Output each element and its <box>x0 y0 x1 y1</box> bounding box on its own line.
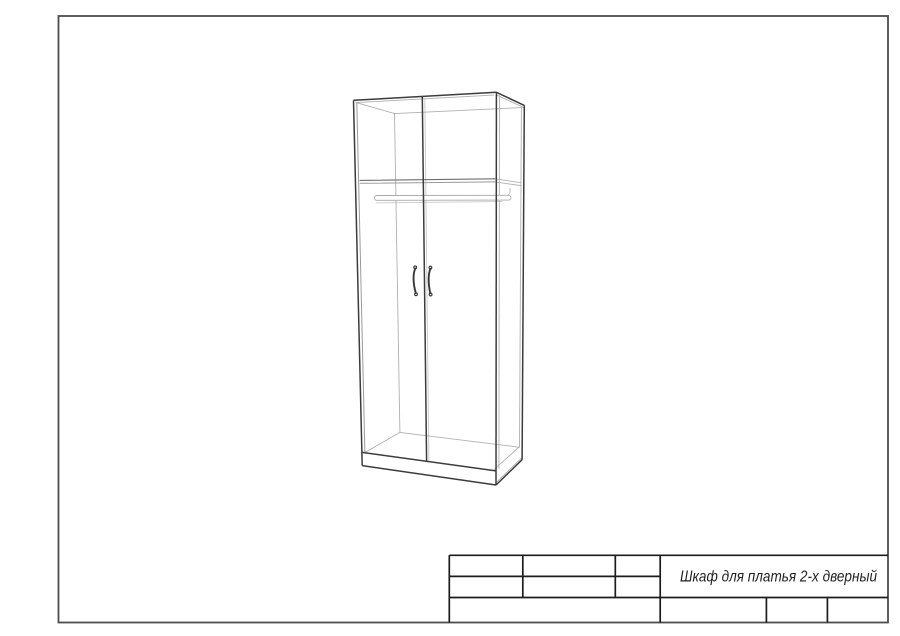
svg-text:Шкаф для платья 2-х дверный: Шкаф для платья 2-х дверный <box>680 569 877 586</box>
